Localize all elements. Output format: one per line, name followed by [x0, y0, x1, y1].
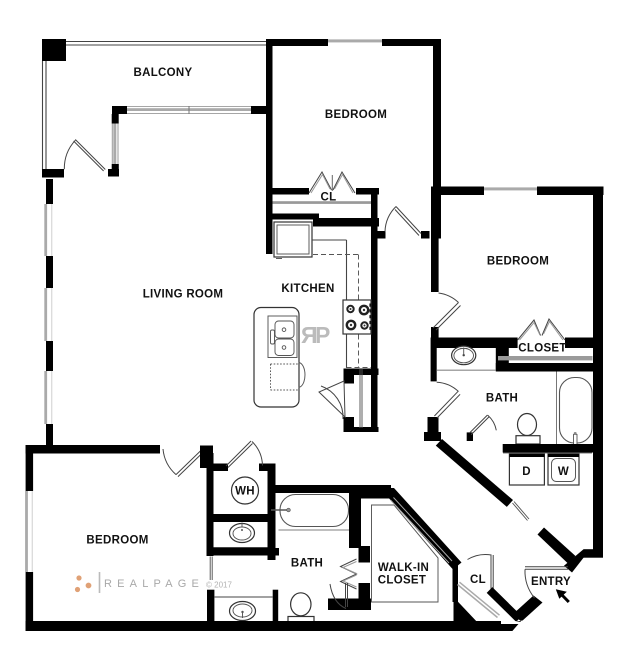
svg-text:ЯP: ЯP	[301, 322, 330, 348]
svg-text:© 2017: © 2017	[206, 581, 232, 590]
svg-text:WH: WH	[235, 486, 255, 498]
svg-text:REALPAGE: REALPAGE	[104, 578, 204, 590]
svg-text:BATH: BATH	[486, 393, 518, 405]
svg-text:ENTRY: ENTRY	[531, 576, 571, 588]
svg-text:W: W	[558, 466, 569, 478]
svg-text:LIVING ROOM: LIVING ROOM	[143, 289, 224, 301]
svg-text:BATH: BATH	[291, 558, 323, 570]
svg-text:WALK-IN: WALK-IN	[378, 562, 429, 574]
svg-text:BEDROOM: BEDROOM	[325, 109, 387, 121]
svg-text:BEDROOM: BEDROOM	[86, 535, 148, 547]
svg-text:CL: CL	[321, 192, 337, 204]
svg-text:BALCONY: BALCONY	[134, 67, 193, 79]
svg-text:KITCHEN: KITCHEN	[281, 283, 334, 295]
svg-text:BEDROOM: BEDROOM	[487, 256, 549, 268]
svg-text:D: D	[522, 466, 531, 478]
svg-text:CLOSET: CLOSET	[518, 343, 566, 355]
svg-text:CL: CL	[470, 574, 486, 586]
svg-text:CLOSET: CLOSET	[378, 575, 426, 587]
